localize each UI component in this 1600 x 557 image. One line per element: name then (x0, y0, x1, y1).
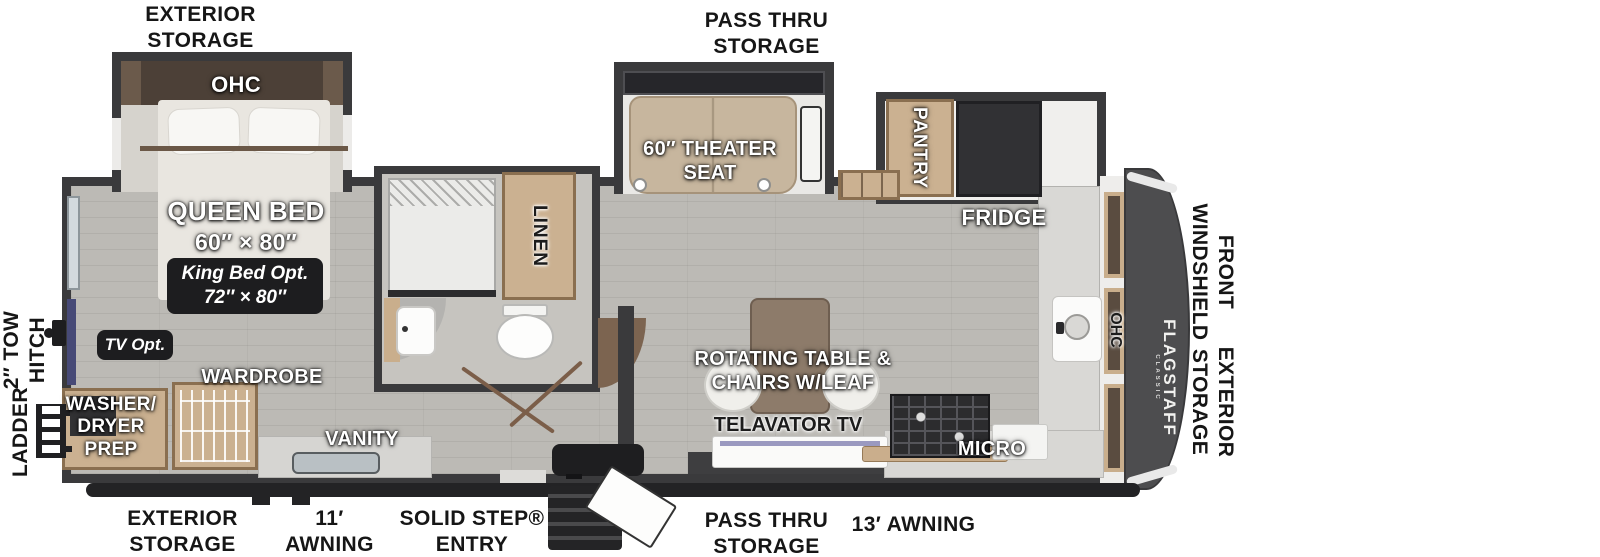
brand-mark: FLAGSTAFF CLASSIC (1144, 313, 1178, 443)
rail-tab (292, 497, 310, 505)
label-11ft-awning: 11′ AWNING (272, 506, 387, 557)
slide-window (343, 115, 352, 170)
wardrobe-hangers (180, 390, 250, 462)
bed-size-label: 60″ × 80″ (150, 229, 342, 256)
vanity-sink (292, 452, 380, 474)
pantry-label: PANTRY (908, 100, 930, 196)
vanity-label: VANITY (300, 428, 424, 452)
kitchen-ohc-label: OHC (1104, 300, 1124, 360)
nightstand (121, 61, 141, 105)
fridge-label: FRIDGE (948, 205, 1060, 231)
label-top-pass-thru-storage: PASS THRU STORAGE (684, 8, 849, 59)
label-ladder: LADDER (8, 382, 32, 482)
nightstand (323, 61, 343, 105)
slide-end-window (800, 106, 822, 182)
washer-dryer-label: WASHER/ DRYER PREP (50, 394, 172, 461)
label-top-exterior-storage: EXTERIOR STORAGE (118, 2, 283, 53)
theater-seat-label: 60″ THEATER SEAT (625, 138, 795, 185)
bedroom-ohc-label: OHC (196, 72, 276, 98)
front-ohc-cabinet (1104, 384, 1124, 472)
fridge (956, 101, 1042, 197)
front-ohc-cabinet (1104, 192, 1124, 278)
wardrobe-label: WARDROBE (182, 366, 342, 390)
entry-threshold (500, 470, 546, 483)
tv-option-badge: TV Opt. (97, 330, 173, 360)
label-bottom-exterior-storage: EXTERIOR STORAGE (100, 506, 265, 557)
label-solid-step-entry: SOLID STEP® ENTRY (388, 506, 556, 557)
label-right-exterior-storage: EXTERIOR STORAGE (1192, 337, 1238, 467)
slide-window (112, 118, 121, 170)
bed-name-label: QUEEN BED (150, 196, 342, 227)
linen-label: LINEN (528, 184, 550, 288)
kitchen-steps (838, 170, 900, 200)
tow-hitch-icon (52, 320, 66, 346)
label-front-windshield: FRONT WINDSHIELD (1192, 194, 1238, 350)
rv-floorplan-diagram: FLAGSTAFF CLASSIC OHC QUEEN BED 60″ × 80… (0, 0, 1600, 557)
front-sink (1064, 314, 1090, 340)
slide-window-band (623, 71, 825, 95)
tv-lift-label: TELAVATOR TV (698, 414, 878, 437)
headboard-rail (140, 146, 348, 151)
toilet-bowl (496, 314, 554, 360)
label-bottom-pass-thru-storage: PASS THRU STORAGE (684, 508, 849, 557)
table-label: ROTATING TABLE & CHAIRS W/LEAF (688, 348, 898, 395)
shower-hatch (390, 180, 494, 206)
brand-series: CLASSIC (1153, 313, 1161, 443)
front-faucet (1056, 322, 1064, 334)
sink-handle (566, 474, 582, 479)
bath-faucet (402, 326, 408, 332)
rear-wall-tv (67, 299, 76, 385)
tv-screen-glow (720, 441, 880, 446)
rear-wall-window (67, 196, 80, 290)
shower-threshold (388, 290, 496, 297)
label-13ft-awning: 13′ AWNING (826, 512, 1001, 538)
rail-tab (252, 497, 270, 505)
kitchen-sink (552, 444, 644, 476)
king-bed-option-badge: King Bed Opt. 72″ × 80″ (167, 258, 323, 314)
micro-label: MICRO (932, 438, 1052, 462)
brand-name: FLAGSTAFF (1161, 313, 1178, 443)
